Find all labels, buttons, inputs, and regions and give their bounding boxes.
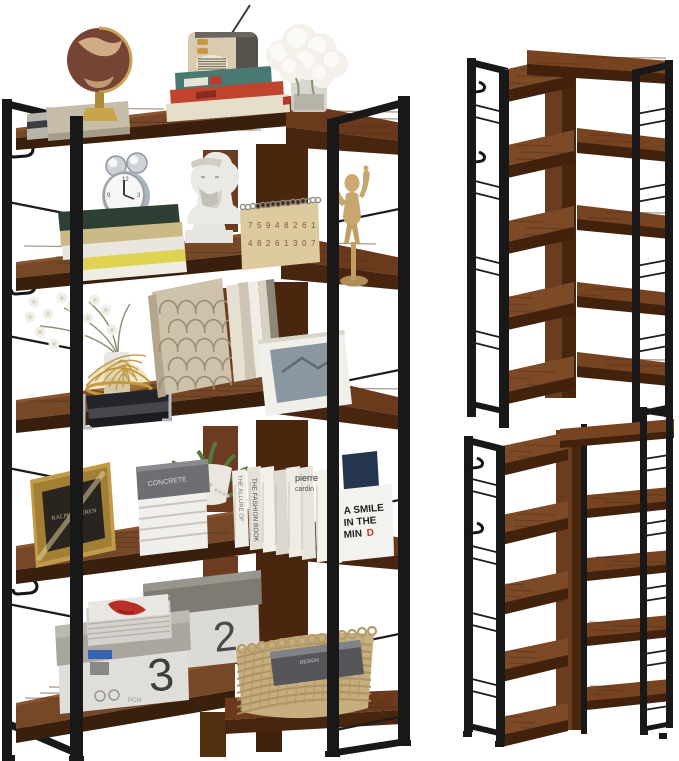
svg-text:7: 7 bbox=[248, 221, 253, 230]
svg-text:5: 5 bbox=[257, 221, 262, 230]
svg-text:3: 3 bbox=[293, 239, 298, 248]
svg-text:1: 1 bbox=[284, 239, 289, 248]
svg-text:1: 1 bbox=[311, 221, 316, 230]
svg-text:0: 0 bbox=[302, 239, 307, 248]
svg-text:8: 8 bbox=[257, 239, 262, 248]
svg-text:2: 2 bbox=[211, 612, 239, 661]
svg-text:7: 7 bbox=[311, 239, 316, 248]
svg-text:6: 6 bbox=[275, 239, 280, 248]
svg-text:4: 4 bbox=[275, 221, 280, 230]
svg-text:pierre: pierre bbox=[295, 473, 318, 483]
svg-text:6: 6 bbox=[302, 221, 307, 230]
svg-text:9: 9 bbox=[266, 221, 271, 230]
svg-text:4: 4 bbox=[248, 239, 253, 248]
svg-text:MIN: MIN bbox=[343, 528, 362, 541]
svg-text:8: 8 bbox=[284, 221, 289, 230]
svg-text:2: 2 bbox=[293, 221, 298, 230]
svg-text:2: 2 bbox=[266, 239, 271, 248]
svg-text:cardin: cardin bbox=[295, 486, 314, 493]
svg-text:D: D bbox=[366, 527, 374, 539]
svg-text:PCM: PCM bbox=[128, 698, 141, 704]
